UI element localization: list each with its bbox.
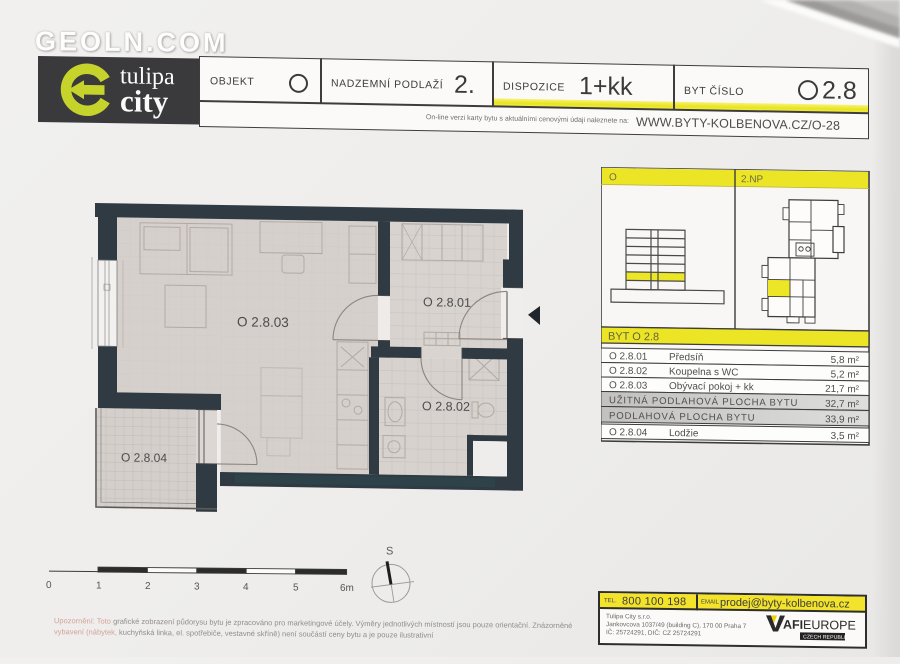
svg-text:EUROPE: EUROPE — [803, 618, 856, 633]
svg-text:2.NP: 2.NP — [741, 174, 764, 185]
svg-text:O 2.8.04: O 2.8.04 — [609, 427, 648, 439]
svg-text:Předsíň: Předsíň — [669, 352, 703, 364]
svg-text:O 2.8.03: O 2.8.03 — [609, 380, 648, 392]
svg-text:6m: 6m — [340, 583, 354, 594]
svg-text:0: 0 — [46, 580, 52, 591]
svg-text:5,2 m²: 5,2 m² — [831, 369, 860, 380]
svg-text:O: O — [609, 172, 617, 183]
svg-text:CZECH REPUBLIC: CZECH REPUBLIC — [803, 634, 849, 641]
svg-text:Obývací pokoj + kk: Obývací pokoj + kk — [669, 381, 755, 393]
svg-text:O 2.8.04: O 2.8.04 — [121, 450, 167, 465]
svg-text:5,8 m²: 5,8 m² — [831, 355, 860, 366]
svg-text:3,5 m²: 3,5 m² — [831, 431, 860, 442]
svg-text:Koupelna s WC: Koupelna s WC — [669, 367, 738, 379]
svg-text:O 2.8.01: O 2.8.01 — [609, 351, 648, 363]
svg-text:AFI: AFI — [783, 618, 803, 632]
svg-text:21,7 m²: 21,7 m² — [825, 384, 860, 396]
svg-text:S: S — [386, 545, 393, 557]
svg-text:BYT O 2.8: BYT O 2.8 — [608, 331, 659, 344]
svg-text:Lodžie: Lodžie — [669, 428, 699, 439]
svg-text:1: 1 — [96, 581, 102, 592]
svg-text:33,9 m²: 33,9 m² — [825, 414, 860, 426]
svg-text:PODLAHOVÁ PLOCHA BYTU: PODLAHOVÁ PLOCHA BYTU — [609, 411, 755, 424]
svg-text:3: 3 — [194, 581, 200, 592]
svg-text:32,7 m²: 32,7 m² — [825, 399, 860, 411]
svg-text:2: 2 — [145, 581, 151, 592]
svg-text:5: 5 — [293, 582, 299, 593]
svg-text:O 2.8.02: O 2.8.02 — [422, 399, 470, 414]
svg-text:O 2.8.01: O 2.8.01 — [423, 295, 471, 310]
svg-text:4: 4 — [243, 582, 249, 593]
svg-text:O 2.8.03: O 2.8.03 — [237, 314, 289, 330]
svg-text:O 2.8.02: O 2.8.02 — [609, 366, 648, 378]
